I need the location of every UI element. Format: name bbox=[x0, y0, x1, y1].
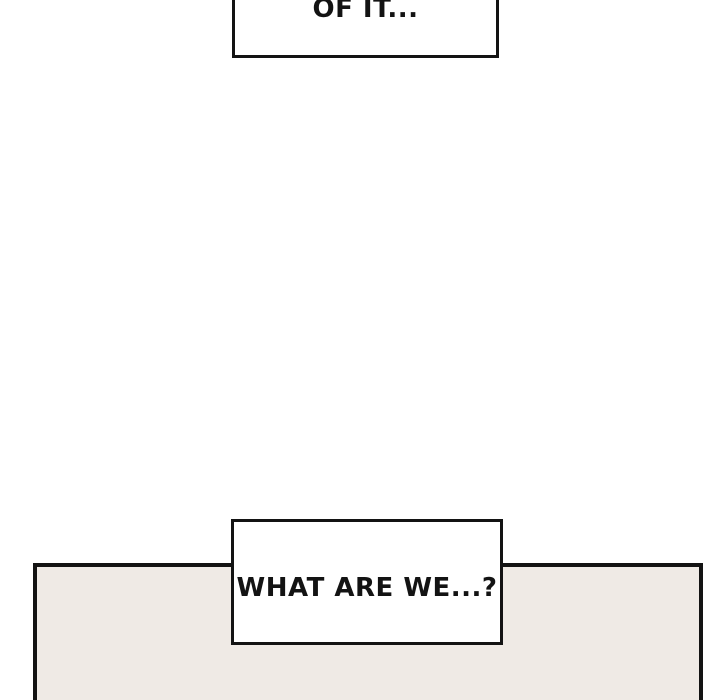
comic-page: OF IT... WHAT ARE WE...? bbox=[0, 0, 720, 700]
speech-bubble-top: OF IT... bbox=[232, 0, 499, 58]
speech-text-bottom: WHAT ARE WE...? bbox=[234, 573, 500, 603]
speech-bubble-bottom: WHAT ARE WE...? bbox=[231, 519, 503, 645]
speech-text-top: OF IT... bbox=[235, 0, 496, 24]
